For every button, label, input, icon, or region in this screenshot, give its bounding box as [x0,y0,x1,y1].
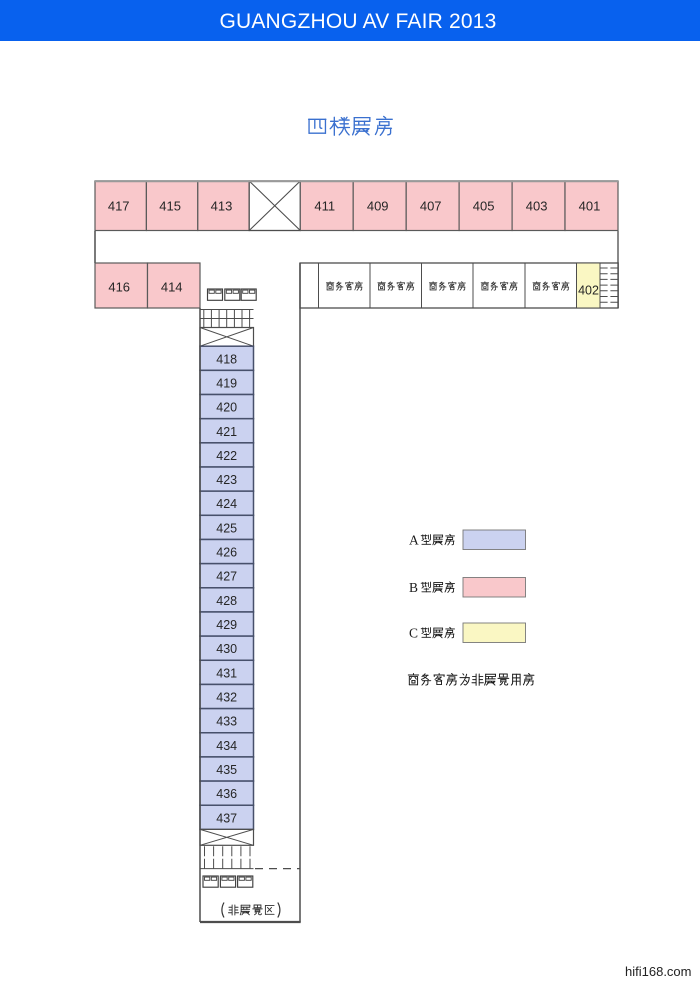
svg-text:413: 413 [211,199,233,214]
svg-text:424: 424 [216,497,237,511]
svg-text:409: 409 [367,199,389,214]
svg-text:416: 416 [108,280,130,295]
svg-text:hifi168.com: hifi168.com [625,964,691,979]
svg-text:GUANGZHOU AV FAIR 2013: GUANGZHOU AV FAIR 2013 [219,10,496,33]
svg-text:433: 433 [216,715,237,729]
svg-text:425: 425 [216,521,237,535]
svg-text:435: 435 [216,763,237,777]
svg-text:434: 434 [216,739,237,753]
svg-text:414: 414 [161,280,183,295]
svg-text:422: 422 [216,449,237,463]
svg-text:A: A [409,533,419,548]
svg-text:411: 411 [314,199,335,214]
svg-text:419: 419 [216,376,237,390]
svg-text:426: 426 [216,546,237,560]
svg-text:417: 417 [108,199,130,214]
svg-text:436: 436 [216,787,237,801]
svg-text:423: 423 [216,473,237,487]
svg-text:407: 407 [420,199,442,214]
svg-text:401: 401 [579,199,601,214]
svg-text:418: 418 [216,352,237,366]
svg-text:402: 402 [578,284,599,298]
svg-text:B: B [409,580,418,595]
svg-text:431: 431 [216,666,237,680]
svg-text:432: 432 [216,691,237,705]
svg-text:403: 403 [526,199,548,214]
svg-text:405: 405 [473,199,495,214]
svg-text:429: 429 [216,618,237,632]
svg-text:420: 420 [216,401,237,415]
svg-text:437: 437 [216,811,237,825]
svg-text:428: 428 [216,594,237,608]
svg-text:427: 427 [216,570,237,584]
svg-text:415: 415 [159,199,181,214]
svg-text:430: 430 [216,642,237,656]
svg-text:C: C [409,626,418,641]
svg-text:421: 421 [216,425,237,439]
